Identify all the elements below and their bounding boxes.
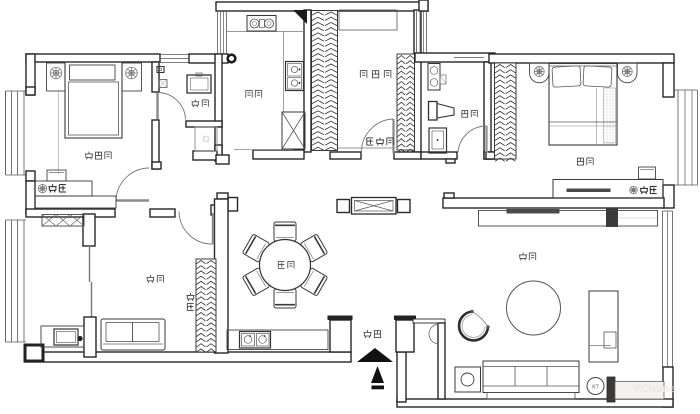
svg-text:PChouse: PChouse xyxy=(634,384,676,395)
svg-text:KT: KT xyxy=(592,385,598,391)
